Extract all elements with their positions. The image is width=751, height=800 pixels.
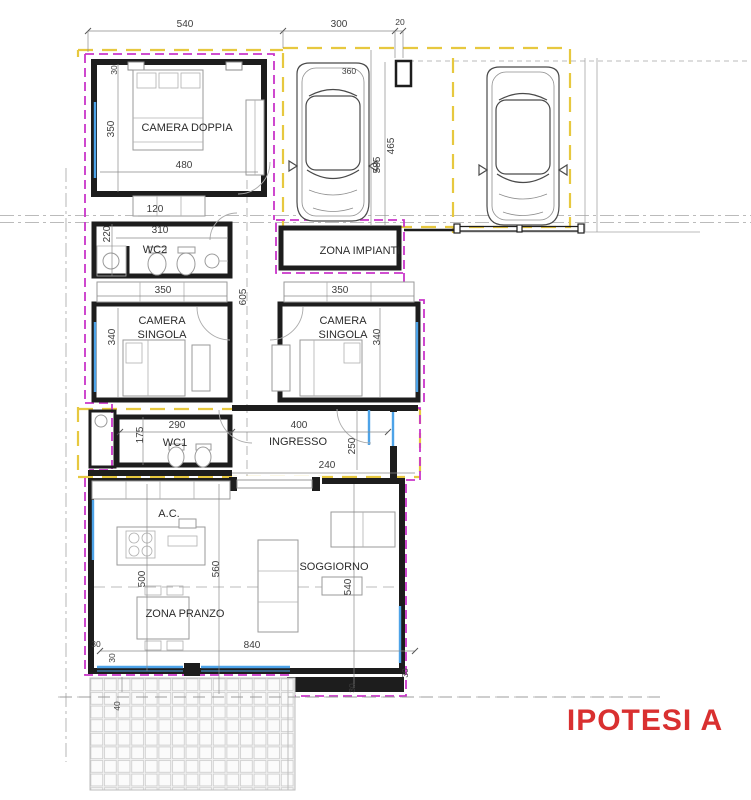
single-bed-right: [272, 340, 362, 396]
wardrobe-strips: [97, 282, 414, 302]
wall-band-bottom: [88, 470, 232, 476]
dim-singola-height-left: 340: [107, 328, 118, 345]
pillar-window-band: [184, 663, 200, 676]
dim-carport-465: 465: [386, 137, 397, 154]
dim-ingresso-250: 250: [347, 437, 358, 454]
door-singola-left: [197, 307, 230, 340]
dim-top-bay: 300: [331, 19, 348, 30]
dim-30-b: 30: [107, 653, 117, 663]
car-1: [289, 63, 377, 221]
coffee-table: [322, 577, 362, 595]
label-wc2: WC2: [143, 244, 167, 256]
label-zona-pranzo: ZONA PRANZO: [146, 608, 225, 620]
cars: [289, 63, 567, 225]
floor-plan-drawing: 540 300 20 360 30 350 480 120 220 310 35…: [0, 0, 751, 800]
dim-opening-240: 240: [319, 460, 336, 471]
dim-30-c: 30: [347, 683, 357, 693]
dim-wc2-width: 310: [152, 225, 169, 236]
dim-cd-width: 480: [176, 160, 193, 171]
dim-wc1-height: 175: [135, 426, 146, 443]
door-singola-right: [270, 307, 303, 340]
carport-pillar: [396, 61, 411, 86]
label-camera-singola-left-1: CAMERA: [138, 315, 186, 327]
label-wc1: WC1: [163, 437, 187, 449]
label-camera-singola-right-2: SINGOLA: [319, 329, 369, 341]
closet-strip: [133, 196, 205, 216]
single-bed-left: [123, 340, 210, 396]
dim-30-d: 30: [400, 668, 410, 678]
label-ingresso: INGRESSO: [269, 436, 328, 448]
car-2: [479, 67, 567, 225]
label-ac: A.C.: [158, 508, 179, 520]
label-camera-doppia: CAMERA DOPPIA: [141, 122, 233, 134]
page-title: IPOTESI A: [567, 704, 723, 737]
dim-corridor: 605: [238, 288, 249, 305]
double-bed: [133, 70, 203, 150]
label-zona-impianti: ZONA IMPIANTI: [320, 245, 401, 257]
dim-patio-40: 40: [112, 701, 122, 711]
floor-plan-page: 540 300 20 360 30 350 480 120 220 310 35…: [0, 0, 751, 800]
dim-living-500: 500: [137, 570, 148, 587]
dim-ingresso-width: 400: [291, 420, 308, 431]
label-camera-singola-right-1: CAMERA: [319, 315, 367, 327]
dim-cd-height: 350: [106, 120, 117, 137]
dim-carport-585: 585: [372, 156, 383, 173]
dim-living-840: 840: [244, 640, 261, 651]
dim-closet: 120: [147, 204, 164, 215]
dim-wc1-width: 290: [169, 420, 186, 431]
dim-living-560: 560: [211, 560, 222, 577]
dim-top-width: 540: [177, 19, 194, 30]
wall-terrace-step: [287, 677, 404, 692]
dim-singola-height-right: 340: [372, 328, 383, 345]
dim-soggiorno-540: 540: [343, 578, 354, 595]
label-soggiorno: SOGGIORNO: [299, 561, 369, 573]
dim-singola-width-left: 350: [155, 285, 172, 296]
kitchen: [92, 481, 230, 565]
dim-top-pillar: 20: [395, 17, 405, 27]
dim-30-a: 30: [91, 639, 101, 649]
label-camera-singola-left-2: SINGOLA: [138, 329, 188, 341]
dim-wc2-height: 220: [102, 225, 113, 242]
dim-singola-width-right: 350: [332, 285, 349, 296]
dim-carport-bay: 360: [342, 66, 356, 76]
opening-living: [232, 476, 322, 487]
dim-wall-30: 30: [109, 65, 119, 75]
